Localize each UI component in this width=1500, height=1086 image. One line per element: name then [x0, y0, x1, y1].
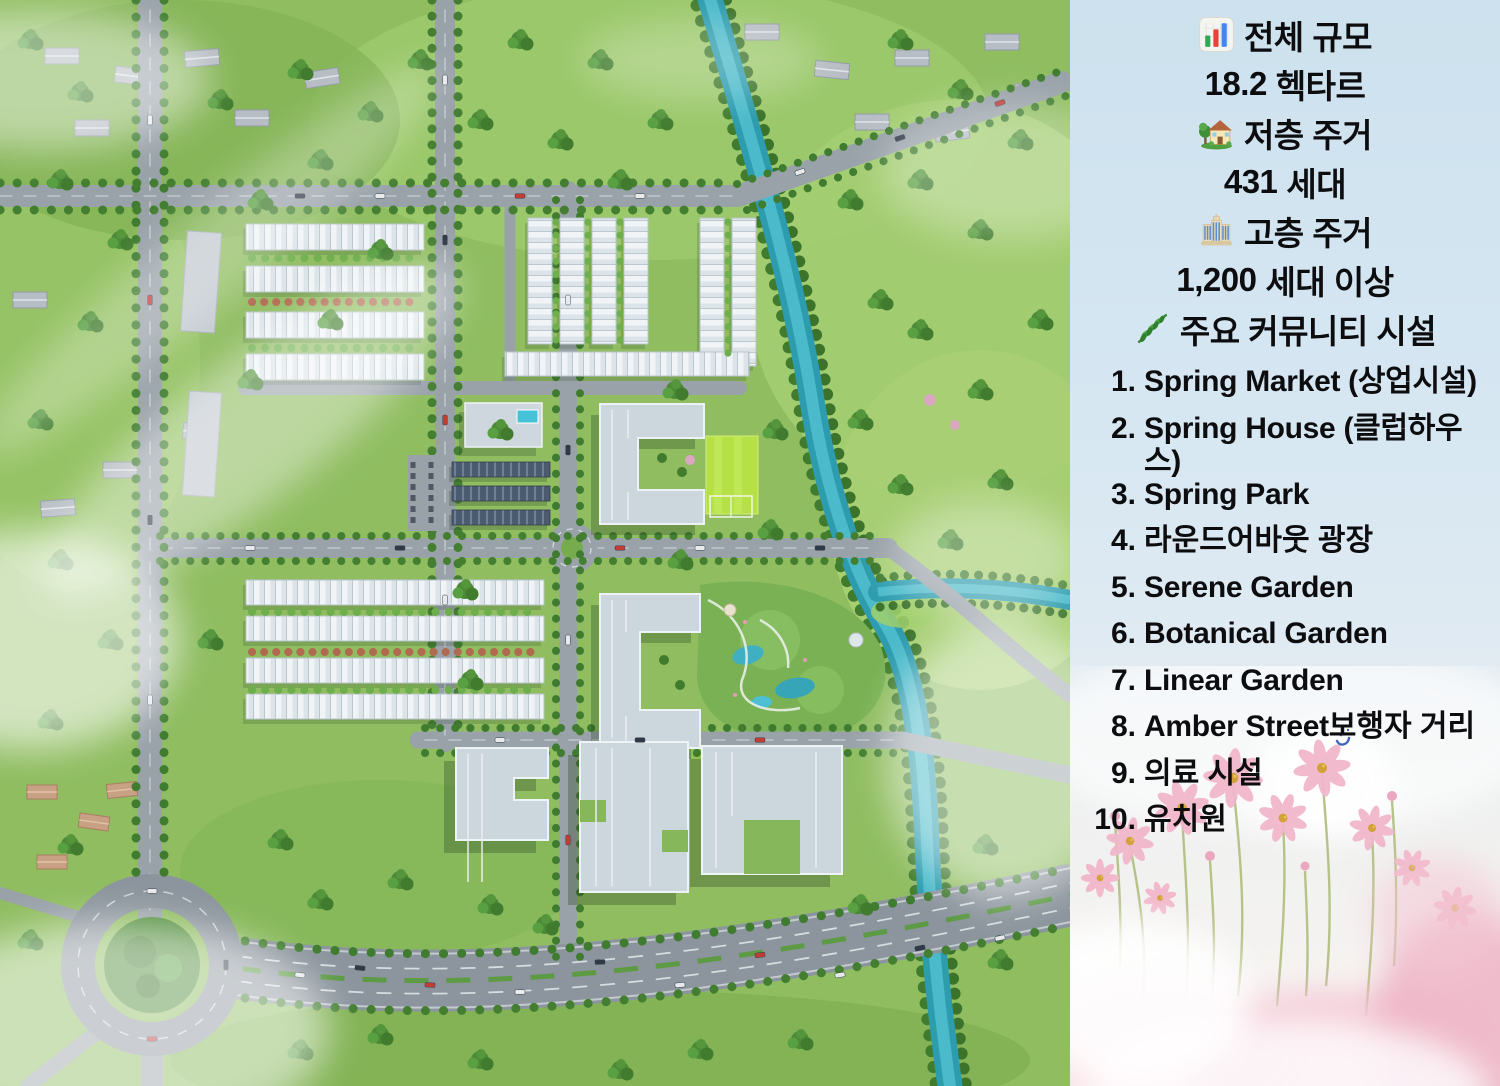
stat-value: 1,200: [1176, 261, 1256, 299]
stat-label: 저층 주거: [1244, 109, 1372, 157]
info-panel: 전체 규모18.2헥타르저층 주거431세대고층 주거1,200세대 이상주요 …: [1070, 0, 1500, 1086]
facility-number: 10.: [1080, 803, 1144, 836]
facility-item: 3.Spring Park: [1080, 478, 1492, 525]
facility-item: 4.라운드어바웃 광장: [1080, 524, 1492, 571]
high-rise-icon: [1198, 212, 1235, 249]
stat-value: 18.2: [1205, 65, 1267, 103]
facility-item: 1.Spring Market (상업시설): [1080, 365, 1492, 412]
stat-label: 전체 규모: [1244, 11, 1372, 59]
masterplan-map: [0, 0, 1070, 1086]
sidebar-stats: 전체 규모18.2헥타르저층 주거431세대고층 주거1,200세대 이상주요 …: [1070, 0, 1500, 353]
facility-name-ko: 의료 시설: [1144, 757, 1263, 790]
facility-name: Spring House (클럽하우스): [1144, 412, 1492, 478]
facility-number: 5.: [1080, 571, 1144, 604]
stat-line: 고층 주거: [1070, 206, 1500, 255]
stat-line: 전체 규모: [1070, 10, 1500, 59]
facility-name: Linear Garden: [1144, 664, 1344, 697]
facility-number: 7.: [1080, 664, 1144, 697]
facility-name: Amber Street: [1144, 710, 1329, 743]
facility-item: 8.Amber Street 보행자 거리: [1080, 710, 1492, 757]
stat-line: 431세대: [1070, 157, 1500, 206]
townhouse-block-b: [502, 218, 756, 381]
sports-field: [706, 436, 758, 517]
facility-item: 6.Botanical Garden: [1080, 617, 1492, 664]
facility-name: Botanical Garden: [1144, 617, 1388, 650]
masterplan-screenshot: 전체 규모18.2헥타르저층 주거431세대고층 주거1,200세대 이상주요 …: [0, 0, 1500, 1086]
stat-line: 저층 주거: [1070, 108, 1500, 157]
stat-label: 헥타르: [1276, 60, 1366, 108]
stat-label: 주요 커뮤니티 시설: [1180, 305, 1436, 353]
facility-item: 7.Linear Garden: [1080, 664, 1492, 711]
facility-name-ko: 유치원: [1144, 803, 1227, 836]
facility-number: 4.: [1080, 524, 1144, 557]
stat-label: 세대: [1286, 158, 1346, 206]
facility-item: 9.의료 시설: [1080, 757, 1492, 804]
house-garden-icon: [1198, 114, 1235, 151]
stat-line: 1,200세대 이상: [1070, 255, 1500, 304]
facility-number: 2.: [1080, 412, 1144, 445]
facility-name-ko: 라운드어바웃 광장: [1144, 524, 1373, 557]
facility-name: Serene Garden: [1144, 571, 1354, 604]
facility-name: Spring Park: [1144, 478, 1309, 511]
facility-item: 5.Serene Garden: [1080, 571, 1492, 618]
bar-chart-icon: [1198, 16, 1235, 53]
facility-number: 9.: [1080, 757, 1144, 790]
facility-number: 8.: [1080, 710, 1144, 743]
herb-icon: [1134, 310, 1171, 347]
stat-label: 세대 이상: [1265, 256, 1393, 304]
facility-number: 1.: [1080, 365, 1144, 398]
stat-line: 18.2헥타르: [1070, 59, 1500, 108]
facility-name: Spring Market (상업시설): [1144, 365, 1477, 398]
facility-number: 3.: [1080, 478, 1144, 511]
stat-label: 고층 주거: [1244, 207, 1372, 255]
facility-list: 1.Spring Market (상업시설)2.Spring House (클럽…: [1070, 365, 1500, 850]
facility-name-ko: 보행자 거리: [1329, 710, 1475, 743]
facility-item: 10.유치원: [1080, 803, 1492, 850]
stat-line: 주요 커뮤니티 시설: [1070, 304, 1500, 353]
facility-item: 2.Spring House (클럽하우스): [1080, 412, 1492, 478]
stat-value: 431: [1224, 163, 1278, 201]
facility-number: 6.: [1080, 617, 1144, 650]
